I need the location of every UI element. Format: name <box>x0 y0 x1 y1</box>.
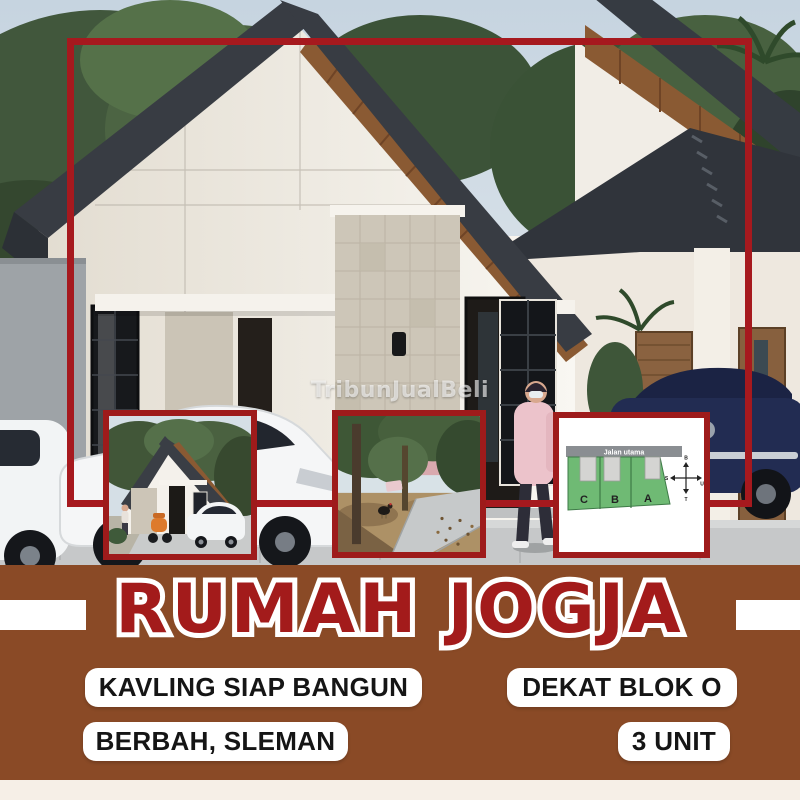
poster-canvas: TribunJualBeli <box>0 0 800 800</box>
site-plan-scene: Jalan utama C B A B T S U <box>559 418 704 552</box>
inset2-tree-trunk <box>352 424 361 544</box>
inset-site-plan: Jalan utama C B A B T S U <box>553 412 710 558</box>
plot-label-a: A <box>644 493 652 505</box>
pill-dekat-blok-o: DEKAT BLOK O <box>507 668 737 707</box>
pill-label: DEKAT BLOK O <box>522 672 722 703</box>
compass-top-label: B <box>684 456 688 462</box>
poster-title-text: RUMAH JOGJA <box>115 570 684 649</box>
compass-right-label: U <box>700 482 704 488</box>
inset-street-scene <box>338 416 480 552</box>
inset-house-thumbnail <box>103 410 257 560</box>
inset-house-scene <box>109 416 251 554</box>
plot-label-c: C <box>580 494 588 506</box>
pill-label: BERBAH, SLEMAN <box>96 726 336 757</box>
compass-bottom-label: T <box>684 497 687 503</box>
pill-label: KAVLING SIAP BANGUN <box>99 672 409 703</box>
inset-street-thumbnail <box>332 410 486 558</box>
pill-3-unit: 3 UNIT <box>618 722 730 761</box>
poster-title: RUMAH JOGJA RUMAH JOGJA <box>0 576 800 644</box>
pill-berbah-sleman: BERBAH, SLEMAN <box>83 722 348 761</box>
pill-label: 3 UNIT <box>632 726 716 757</box>
pill-kavling-siap-bangun: KAVLING SIAP BANGUN <box>85 668 422 707</box>
site-plan-road-label: Jalan utama <box>604 450 645 457</box>
bottom-cream-strip <box>0 780 800 800</box>
plot-label-b: B <box>611 494 619 506</box>
